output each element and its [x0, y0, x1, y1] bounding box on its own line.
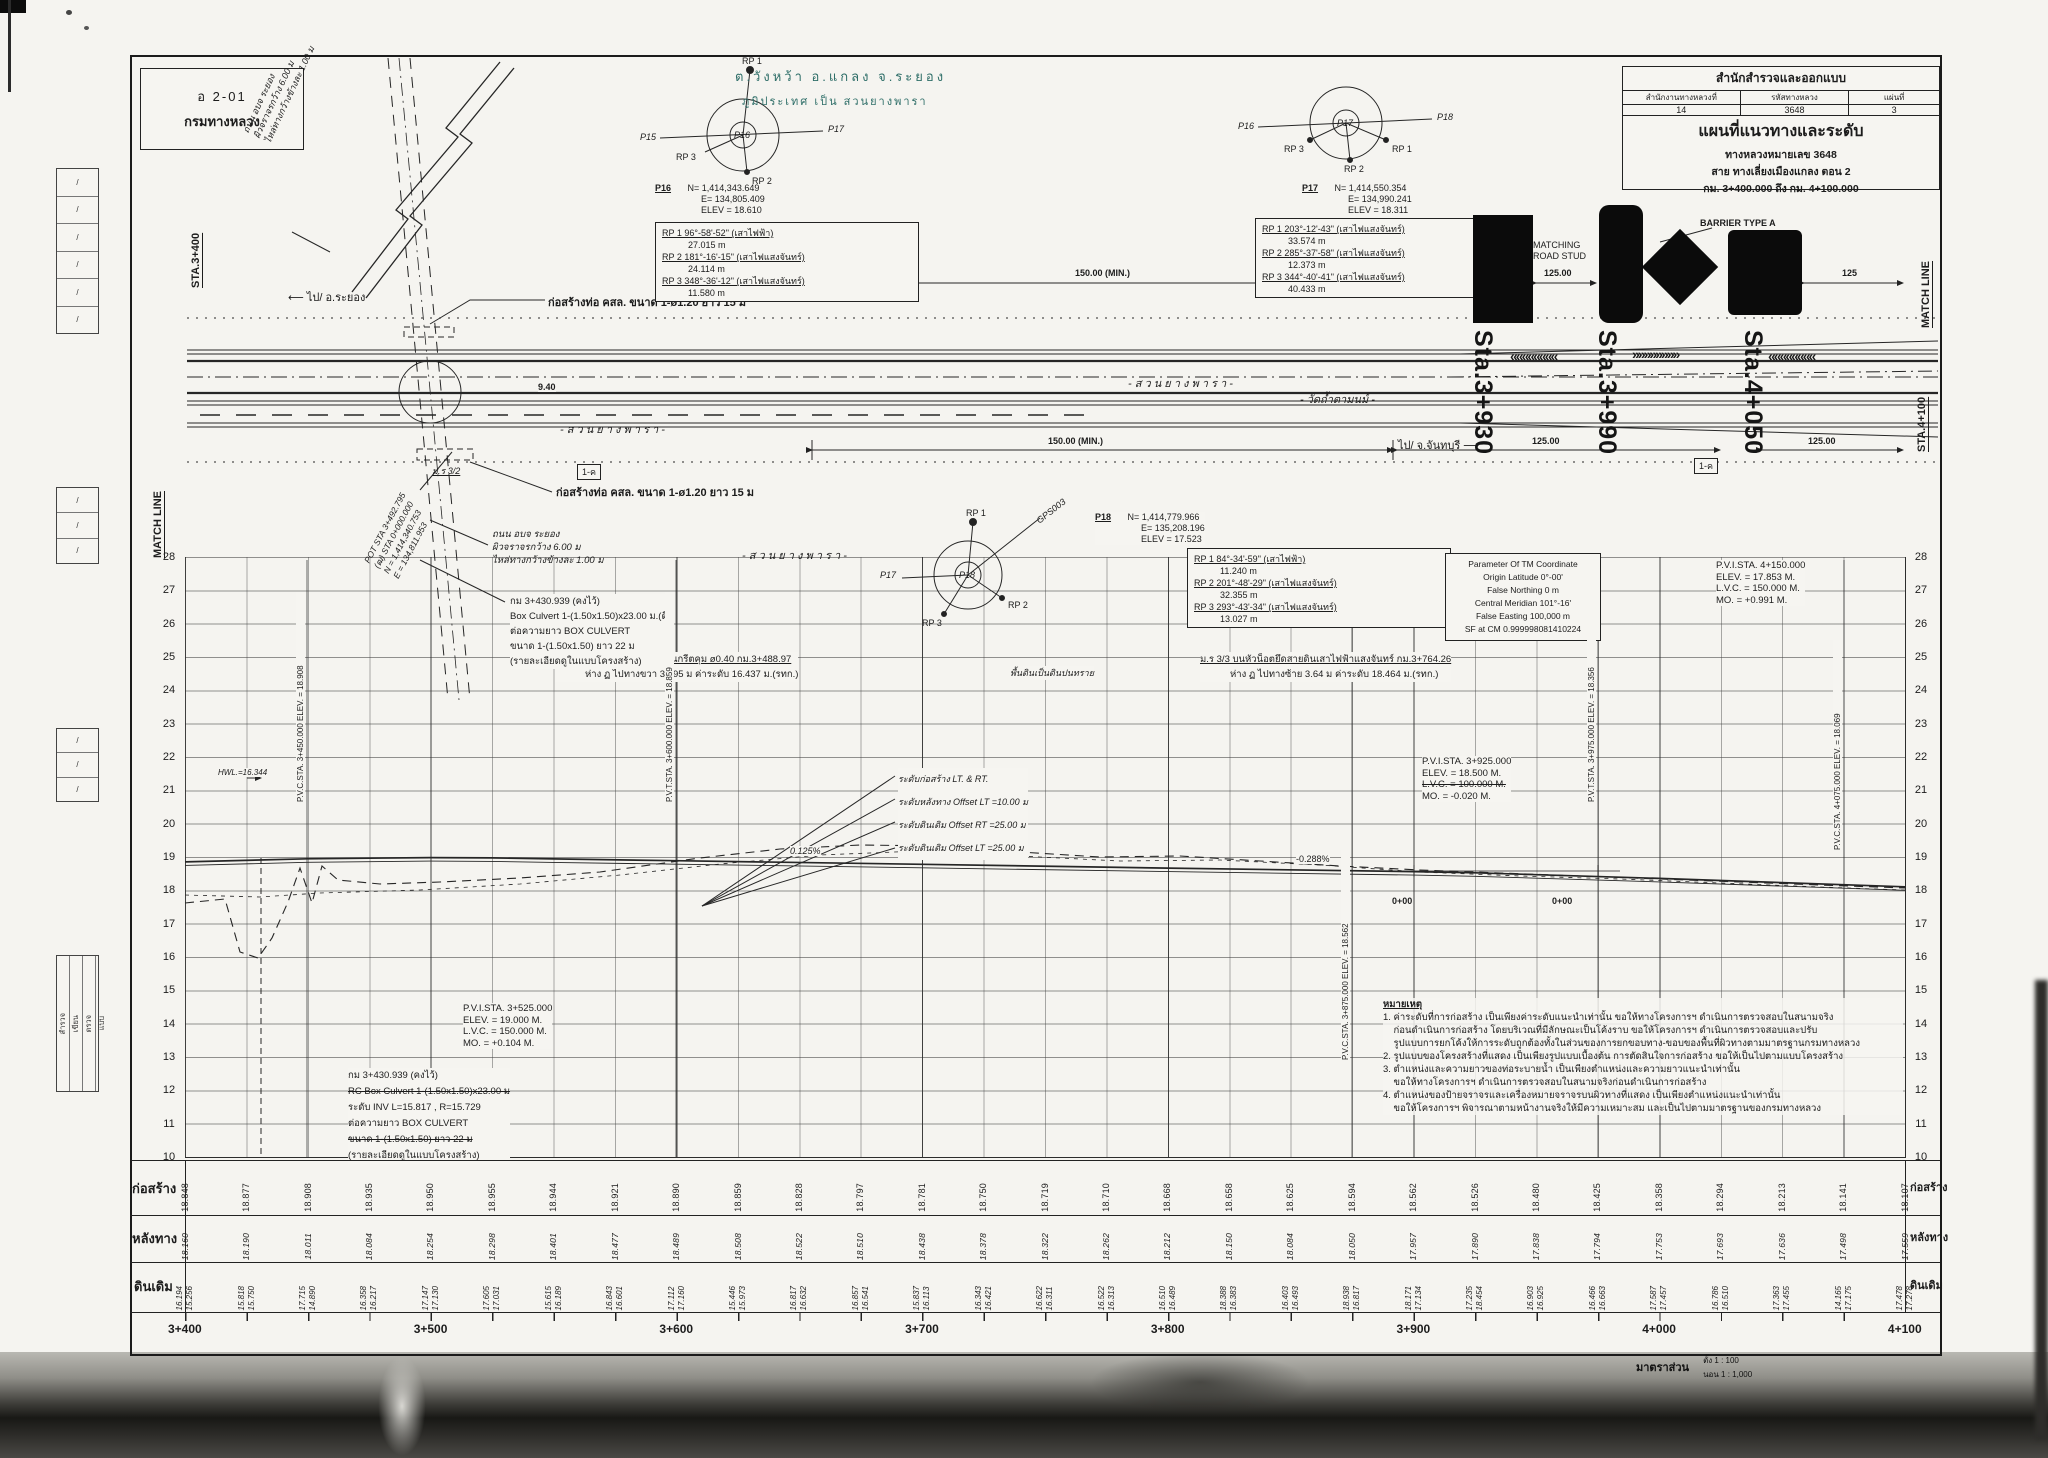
revision-strip-3: ///	[56, 728, 99, 802]
culvert-note-line: ขนาด 1-(1.50x1.50) ยาว 22 ม	[510, 639, 671, 654]
back-value: 18.190	[215, 1233, 276, 1260]
rp-entry: RP 3 293°-43'-34" (เสาไฟแสงจันทร์)13.027…	[1194, 600, 1444, 624]
pvi-line: MO. = -0.020 M.	[1422, 791, 1511, 803]
back-value: 17.890	[1444, 1233, 1505, 1260]
ground-value-pair: 16.85716.541	[830, 1286, 891, 1310]
ground-value-pair: 16.40316.493	[1260, 1286, 1321, 1310]
offset-line: ระดับดินเดิม Offset LT =25.00 ม	[898, 837, 1028, 860]
construction-value: 18.480	[1505, 1183, 1566, 1212]
p18-left-label: P17	[880, 570, 896, 580]
back-value: 17.753	[1628, 1233, 1689, 1260]
elevation-tick: 13	[1908, 1045, 1934, 1069]
ground-value-pair: 17.23518.454	[1444, 1286, 1505, 1310]
vlabel-pvc-4075: P.V.C.STA. 4+075.000 ELEV. = 18.069	[1833, 640, 1842, 850]
grade-label-2: -0.288%	[1296, 854, 1330, 864]
direction-chanthaburi: ไป/ จ.จันทบุรี ⟶	[1398, 436, 1479, 454]
construction-value: 18.955	[461, 1183, 522, 1212]
elevation-tick: 18	[1908, 878, 1934, 902]
drawing-title: แผนที่แนวทางและระดับ	[1623, 116, 1939, 144]
remarks-line: ขอให้ทางโครงการฯ ดำเนินการตรวจสอบในสนามจ…	[1383, 1076, 1903, 1089]
ground-value-pair: 17.47817.278	[1874, 1286, 1935, 1310]
sta-3400-label: STA.3+400	[190, 192, 202, 288]
back-value: 18.160	[154, 1233, 215, 1260]
p16-rp1-label: RP 1	[742, 56, 762, 66]
chevron-marking-1: ««««««««	[1510, 348, 1556, 364]
tm-parameter-box: Parameter Of TM CoordinateOrigin Latitud…	[1445, 553, 1601, 641]
redaction-box-3	[1728, 230, 1802, 315]
dim-125-top: 125.00	[1544, 268, 1572, 278]
station-overlay-3930: Sta.3+930	[1468, 330, 1497, 480]
ground-value-pair: 16.62216.311	[1014, 1286, 1075, 1310]
rp-entry: RP 3 348°-36'-12" (เสาไฟแสงจันทร์)11.580…	[662, 274, 912, 298]
culvert-note-line: (รายละเอียดดูในแบบโครงสร้าง)	[510, 654, 671, 669]
back-value: 17.636	[1751, 1233, 1812, 1260]
ground-value-pair: 16.19415.256	[154, 1286, 215, 1310]
construction-value: 18.828	[768, 1183, 829, 1212]
scale-horizontal: นอน 1 : 1,000	[1703, 1370, 1752, 1379]
revision-row: /	[57, 753, 98, 777]
pvi-line: L.V.C. = 150.000 M.	[1716, 583, 1805, 595]
construction-value: 18.719	[1014, 1183, 1075, 1212]
construction-value: 18.107	[1874, 1183, 1935, 1212]
revision-row: /	[57, 279, 98, 307]
construction-value: 18.921	[584, 1183, 645, 1212]
ground-value-pair: 16.78616.510	[1690, 1286, 1751, 1310]
p16-center-label: P16	[734, 130, 750, 140]
ground-value-pair: 15.81815.750	[215, 1286, 276, 1310]
culvert-note-line: Box Culvert 1-(1.50x1.50)x23.00 ม.(ดี)	[510, 609, 671, 624]
construction-value: 18.750	[952, 1183, 1013, 1212]
back-value: 18.510	[830, 1233, 891, 1260]
revision-row: /	[57, 252, 98, 280]
back-value: 18.438	[891, 1233, 952, 1260]
construction-value: 18.877	[215, 1183, 276, 1212]
signature-col: เขียน	[70, 956, 83, 1091]
pvi-line: ELEV. = 19.000 M.	[463, 1015, 552, 1027]
back-value: 18.522	[768, 1233, 829, 1260]
back-value: 17.957	[1382, 1233, 1443, 1260]
back-value: 17.838	[1505, 1233, 1566, 1260]
elevation-tick: 24	[156, 678, 182, 702]
scale-label: มาตราส่วน	[1636, 1358, 1689, 1376]
p18-rp3-label: RP 3	[922, 618, 942, 628]
scale-vertical: ตั้ง 1 : 100	[1703, 1356, 1739, 1365]
culvert-profile-line: ระดับ INV L=15.817 , R=15.729	[348, 1100, 510, 1116]
construction-value: 18.213	[1751, 1183, 1812, 1212]
elevation-tick: 12	[156, 1078, 182, 1102]
culvert-profile-line: RC Box Culvert 1-(1.50x1.50)x23.00 ม	[348, 1084, 510, 1100]
ground-value-pair: 18.93816.817	[1321, 1286, 1382, 1310]
ground-value-pair: 17.36317.455	[1751, 1286, 1812, 1310]
construction-value: 18.710	[1075, 1183, 1136, 1212]
dim-940: 9.40	[538, 382, 556, 392]
elevation-tick: 27	[1908, 578, 1934, 602]
culvert-profile-line: (รายละเอียดดูในแบบโครงสร้าง)	[348, 1148, 510, 1164]
symbol-1k-right: 1-ค	[1694, 458, 1718, 474]
section-name: สาย ทางเลี่ยงเมืองแกลง ตอน 2	[1623, 163, 1939, 180]
back-value: 18.150	[1198, 1233, 1259, 1260]
offset-line: ระดับดินเดิม Offset RT =25.00 ม	[898, 814, 1028, 837]
pvi-line: P.V.I.STA. 3+525.000	[463, 1003, 552, 1015]
construction-value: 18.425	[1567, 1183, 1628, 1212]
elevation-tick: 16	[156, 945, 182, 969]
signature-strip: สำรวจเขียนตรวจแบบ	[56, 955, 99, 1092]
station-label: 3+600	[553, 1322, 799, 1336]
revision-row: /	[57, 169, 98, 197]
remarks-line: 1. ค่าระดับที่การก่อสร้าง เป็นเพียงค่าระ…	[1383, 1011, 1903, 1024]
station-label: 3+400	[62, 1322, 308, 1336]
pvi-line: MO. = +0.991 M.	[1716, 595, 1805, 607]
station-tick-strip	[185, 1312, 1905, 1321]
side-road-note-line: ผิวจราจรกว้าง 6.00 ม	[492, 541, 604, 554]
tm-parameter-line: Central Meridian 101°-16'	[1448, 597, 1598, 610]
dim-125-bottom-2: 125.00	[1808, 436, 1836, 446]
elevation-tick: 17	[156, 912, 182, 936]
back-values-row: 18.16018.19018.01118.08418.25418.29818.4…	[154, 1217, 1936, 1260]
culvert-note-line: กม 3+430.939 (คงไว้)	[510, 594, 671, 609]
elevation-tick: 24	[1908, 678, 1934, 702]
revision-row: /	[57, 778, 98, 801]
elevation-tick: 28	[156, 545, 182, 569]
form-code: อ 2-01	[197, 86, 246, 107]
station-label: 3+800	[1045, 1322, 1291, 1336]
signature-col: ตรวจ	[83, 956, 96, 1091]
elevation-tick: 19	[1908, 845, 1934, 869]
p17-left-label: P16	[1238, 121, 1254, 131]
construction-value: 18.935	[338, 1183, 399, 1212]
pvi-line: ELEV. = 18.500 M.	[1422, 768, 1511, 780]
station-label: 4+000	[1536, 1322, 1782, 1336]
elevation-tick: 26	[1908, 612, 1934, 636]
culvert-profile-line: ต่อความยาว BOX CULVERT	[348, 1116, 510, 1132]
remarks-line: ก่อนดำเนินการก่อสร้าง โดยบริเวณที่มีลักษ…	[1383, 1024, 1903, 1037]
elevation-tick: 17	[1908, 912, 1934, 936]
match-line-left: MATCH LINE	[152, 462, 164, 558]
ground-value-pair: 15.83716.113	[891, 1286, 952, 1310]
ground-value-pair: 17.60517.031	[461, 1286, 522, 1310]
station-label: 3+700	[799, 1322, 1045, 1336]
culvert-note-line: ต่อความยาว BOX CULVERT	[510, 624, 671, 639]
back-value: 18.262	[1075, 1233, 1136, 1260]
row-divider-3	[130, 1262, 1940, 1263]
p17-right-label: P18	[1437, 112, 1453, 122]
redaction-box-1	[1473, 215, 1533, 323]
ground-value-pair: 17.14717.130	[400, 1286, 461, 1310]
back-value: 18.489	[645, 1233, 706, 1260]
elevation-tick: 11	[1908, 1112, 1934, 1136]
revision-row: /	[57, 224, 98, 252]
signature-col: สำรวจ	[57, 956, 70, 1091]
elevation-tick: 21	[1908, 778, 1934, 802]
elevation-tick: 26	[156, 612, 182, 636]
ground-value-pair: 17.71514.890	[277, 1286, 338, 1310]
offsets-legend: ระดับก่อสร้าง LT. & RT.ระดับหลังทาง Offs…	[898, 768, 1028, 860]
back-value: 17.794	[1567, 1233, 1628, 1260]
back-value: 18.084	[1260, 1233, 1321, 1260]
p17-rp2-label: RP 2	[1344, 164, 1364, 174]
elevation-tick: 25	[1908, 645, 1934, 669]
p16-rp3-label: RP 3	[676, 152, 696, 162]
title-col-roadcode: รหัสทางหลวง	[1741, 91, 1850, 104]
elevation-tick: 28	[1908, 545, 1934, 569]
tm-parameter-line: Parameter Of TM Coordinate	[1448, 558, 1598, 571]
dim-125-right: 125	[1842, 268, 1857, 278]
elevation-tick: 22	[156, 745, 182, 769]
p18-center-label: P18	[959, 570, 975, 580]
km-range: กม. 3+400.000 ถึง กม. 4+100.000	[1623, 180, 1939, 197]
plantation-label-3: - ส ว น ย า ง พ า ร า -	[742, 546, 847, 564]
construction-value: 18.797	[830, 1183, 891, 1212]
construction-value: 18.294	[1690, 1183, 1751, 1212]
location-line: ต.วังหว้า อ.แกลง จ.ระยอง	[735, 66, 946, 87]
revision-row: /	[57, 197, 98, 225]
remarks-line: 3. ตำแหน่งและความยาวของท่อระบายน้ำ เป็นเ…	[1383, 1063, 1903, 1076]
remarks-line: 2. รูปแบบของโครงสร้างที่แสดง เป็นเพียงรู…	[1383, 1050, 1903, 1063]
tm-parameter-line: False Northing 0 m	[1448, 584, 1598, 597]
bm-plan-label: ม.ร 3/2	[432, 464, 460, 478]
highway-number: ทางหลวงหมายเลข 3648	[1623, 144, 1939, 163]
remarks-line: รูปแบบการยกโค้งให้การระดับถูกต้องทั้งในส…	[1383, 1037, 1903, 1050]
p17-coordinates: P17 N= 1,414,550.354E= 134,990.241ELEV =…	[1302, 183, 1412, 216]
arrow-left-icon: ⟵	[288, 292, 307, 304]
side-road-note-line: ถนน อบจ ระยอง	[492, 528, 604, 541]
elevation-tick: 23	[156, 712, 182, 736]
direction-rayong: ⟵ ไป/ อ.ระยอง	[288, 288, 365, 306]
revision-row: /	[57, 539, 98, 563]
terrain-line: ภูมิประเทศ เป็น สวนยางพารา	[742, 92, 928, 110]
construction-value: 18.141	[1812, 1183, 1873, 1212]
elevation-tick: 19	[156, 845, 182, 869]
tm-parameter-line: Origin Latitude 0°-00'	[1448, 571, 1598, 584]
offset-line: ระดับก่อสร้าง LT. & RT.	[898, 768, 1028, 791]
construction-value: 18.890	[645, 1183, 706, 1212]
offset-line: ระดับหลังทาง Offset LT =10.00 ม	[898, 791, 1028, 814]
pvi-line: L.V.C. = 150.000 M.	[463, 1026, 552, 1038]
ground-value-pair: 16.52216.313	[1075, 1286, 1136, 1310]
station-label: 3+900	[1291, 1322, 1537, 1336]
vlabel-pvt-3975: P.V.T.STA. 3+975.000 ELEV. = 18.356	[1587, 592, 1596, 802]
title-block: สำนักสำรวจและออกแบบ สำนักงานทางหลวงที่ ร…	[1622, 66, 1940, 190]
back-value: 17.693	[1690, 1233, 1751, 1260]
p18-rp1-label: RP 1	[966, 508, 986, 518]
revision-strip-2: ///	[56, 487, 99, 564]
dim-150-top: 150.00 (MIN.)	[1075, 268, 1130, 278]
ground-value-pair: 16.46616.663	[1567, 1286, 1628, 1310]
station-labels-row: 3+4003+5003+6003+7003+8003+9004+0004+100	[62, 1322, 2028, 1336]
elevation-tick: 14	[1908, 1012, 1934, 1036]
ground-value-pair: 17.11217.160	[645, 1286, 706, 1310]
plantation-label-2: - ส ว น ย า ง พ า ร า -	[1128, 374, 1233, 392]
p18-coordinates: P18 N= 1,414,779.966E= 135,208.196ELEV =…	[1095, 512, 1205, 545]
back-value: 18.322	[1014, 1233, 1075, 1260]
plantation-label-1: - ส ว น ย า ง พ า ร า -	[560, 420, 665, 438]
ground-value-pair: 15.61516.189	[523, 1286, 584, 1310]
rp-entry: RP 2 181°-16'-15" (เสาไฟแสงจันทร์)24.114…	[662, 250, 912, 274]
back-value: 18.011	[277, 1233, 338, 1260]
station-label: 4+100	[1782, 1322, 2028, 1336]
ground-value-pair: 16.34316.421	[952, 1286, 1013, 1310]
title-val-roadcode: 3648	[1741, 105, 1850, 115]
culvert-profile-line: ขนาด 1-(1.50x1.50) ยาว 22 ม	[348, 1132, 510, 1148]
station-overlay-3990: Sta.3+990	[1592, 330, 1621, 480]
construction-value: 18.668	[1137, 1183, 1198, 1212]
p16-rp-table: RP 1 96°-58'-52" (เสาไฟฟ้า)27.015 mRP 2 …	[655, 222, 919, 302]
pvi-line: L.V.C. = 100.000 M.	[1422, 779, 1511, 791]
elevation-tick: 15	[1908, 978, 1934, 1002]
back-value: 18.378	[952, 1233, 1013, 1260]
p16-left-label: P15	[640, 132, 656, 142]
elevation-tick: 16	[1908, 945, 1934, 969]
construction-value: 18.950	[400, 1183, 461, 1212]
ground-value-pair: 16.35816.217	[338, 1286, 399, 1310]
chevron-marking-3: ««««««««	[1768, 348, 1814, 364]
ground-values-row: 16.19415.25615.81815.75017.71514.89016.3…	[154, 1264, 1936, 1310]
construction-value: 18.658	[1198, 1183, 1259, 1212]
back-value: 18.477	[584, 1233, 645, 1260]
rp-entry: RP 1 96°-58'-52" (เสาไฟฟ้า)27.015 m	[662, 226, 912, 250]
vlabel-pvc-3450: P.V.C.STA. 3+450.000 ELEV. = 18.908	[296, 592, 305, 802]
title-val-office: 14	[1623, 105, 1741, 115]
back-value: 18.508	[707, 1233, 768, 1260]
barrier-type-label: BARRIER TYPE A	[1700, 218, 1776, 228]
p17-rp1-label: RP 1	[1392, 144, 1412, 154]
vlabel-pvc-3875: P.V.C.STA. 3+875.000 ELEV. = 18.562	[1341, 850, 1350, 1060]
row-divider-2	[130, 1215, 1940, 1216]
pvi-block-1: P.V.I.STA. 3+525.000ELEV. = 19.000 M.L.V…	[463, 1003, 552, 1049]
revision-row: /	[57, 513, 98, 538]
title-col-office: สำนักงานทางหลวงที่	[1623, 91, 1741, 104]
culvert-plan-note: กม 3+430.939 (คงไว้)Box Culvert 1-(1.50x…	[510, 594, 671, 669]
side-road-note-line: ไหล่ทางกว้างข้างละ 1.00 ม	[492, 554, 604, 567]
pvi-block-2: P.V.I.STA. 3+925.000ELEV. = 18.500 M.L.V…	[1422, 756, 1511, 802]
dim-150-bottom: 150.00 (MIN.)	[1048, 436, 1103, 446]
redaction-box-2	[1599, 205, 1643, 323]
remarks-heading: หมายเหตุ	[1383, 998, 1903, 1011]
construction-value: 18.625	[1260, 1183, 1321, 1212]
elevation-tick: 13	[156, 1045, 182, 1069]
ground-value-pair: 18.17117.134	[1382, 1286, 1443, 1310]
tm-parameter-line: SF at CM 0.999998081410224	[1448, 623, 1598, 636]
station-label: 3+500	[308, 1322, 554, 1336]
construction-value: 18.859	[707, 1183, 768, 1212]
scale-note: มาตราส่วน ตั้ง 1 : 100 นอน 1 : 1,000	[1636, 1353, 1752, 1381]
elevation-tick: 14	[156, 1012, 182, 1036]
elevation-tick: 18	[156, 878, 182, 902]
temple-label: - วัดถ้ำตามนม์ -	[1300, 390, 1375, 408]
pvi-line: P.V.I.STA. 3+925.000	[1422, 756, 1511, 768]
remarks-block: หมายเหตุ 1. ค่าระดับที่การก่อสร้าง เป็นเ…	[1383, 998, 1903, 1115]
elevation-tick: 12	[1908, 1078, 1934, 1102]
p16-right-label: P17	[828, 124, 844, 134]
revision-row: /	[57, 307, 98, 334]
culvert-profile-note: กม 3+430.939 (คงไว้)RC Box Culvert 1-(1.…	[348, 1068, 510, 1164]
ground-value-pair: 15.44615.973	[707, 1286, 768, 1310]
rp-entry: RP 2 201°-48'-29" (เสาไฟแสงจันทร์)32.355…	[1194, 576, 1444, 600]
remarks-line: ขอให้โครงการฯ พิจารณาตามหน้างานจริงให้มี…	[1383, 1102, 1903, 1115]
ground-value-pair: 16.90316.925	[1505, 1286, 1566, 1310]
back-value: 18.212	[1137, 1233, 1198, 1260]
station-overlay-4050: Sta.4+050	[1738, 330, 1767, 480]
construction-value: 18.562	[1382, 1183, 1443, 1212]
ground-value-pair: 16.84316.601	[584, 1286, 645, 1310]
elevation-tick: 27	[156, 578, 182, 602]
construction-value: 18.908	[277, 1183, 338, 1212]
p18-rp-table: RP 1 84°-34'-59" (เสาไฟฟ้า)11.240 mRP 2 …	[1187, 548, 1451, 628]
back-value: 17.559	[1874, 1233, 1935, 1260]
match-line-right: MATCH LINE	[1920, 228, 1932, 328]
culvert-profile-line: กม 3+430.939 (คงไว้)	[348, 1068, 510, 1084]
ground-value-pair: 16.81716.632	[768, 1286, 829, 1310]
matching-road-stud: MATCHINGROAD STUD	[1533, 240, 1586, 262]
p17-rp3-label: RP 3	[1284, 144, 1304, 154]
back-value: 18.254	[400, 1233, 461, 1260]
elevation-tick: 21	[156, 778, 182, 802]
elevation-tick: 22	[1908, 745, 1934, 769]
elevation-tick: 11	[156, 1112, 182, 1136]
construction-value: 18.848	[154, 1183, 215, 1212]
ground-value-pair: 16.51016.489	[1137, 1286, 1198, 1310]
sta-4100-label: STA.4+100	[1916, 352, 1928, 452]
row-divider-1	[130, 1160, 1940, 1161]
signature-col: แบบ	[96, 956, 108, 1091]
vlabel-pvt-3600: P.V.T.STA. 3+600.000 ELEV. = 18.859	[665, 592, 674, 802]
back-value: 18.401	[523, 1233, 584, 1260]
elevation-tick: 15	[156, 978, 182, 1002]
construction-value: 18.358	[1628, 1183, 1689, 1212]
p17-center-label: P17	[1337, 118, 1353, 128]
elevation-tick: 23	[1908, 712, 1934, 736]
zero-label-2: 0+00	[1552, 896, 1572, 906]
construction-value: 18.781	[891, 1183, 952, 1212]
pvi-block-3: P.V.I.STA. 4+150.000ELEV. = 17.853 M.L.V…	[1716, 560, 1805, 606]
construction-value: 18.944	[523, 1183, 584, 1212]
soil-note: พื้นดินเป็นดินปนทราย	[1010, 666, 1094, 680]
pipe-note-bottom: ก่อสร้างท่อ คสล. ขนาด 1-ø1.20 ยาว 15 ม	[556, 483, 754, 501]
revision-row: /	[57, 488, 98, 513]
back-value: 18.050	[1321, 1233, 1382, 1260]
zero-label-1: 0+00	[1392, 896, 1412, 906]
title-val-sheet: 3	[1849, 105, 1939, 115]
elevation-scale-left: 28272625242322212019181716151413121110	[156, 545, 182, 1169]
back-value: 17.498	[1812, 1233, 1873, 1260]
pvi-line: P.V.I.STA. 4+150.000	[1716, 560, 1805, 572]
chevron-marking-2: »»»»»»»»	[1632, 346, 1678, 362]
construction-values-row: 18.84818.87718.90818.93518.95018.95518.9…	[154, 1164, 1936, 1212]
dim-125-bottom-1: 125.00	[1532, 436, 1560, 446]
title-block-bureau: สำนักสำรวจและออกแบบ	[1623, 67, 1939, 91]
revision-row: /	[57, 729, 98, 753]
back-value: 18.298	[461, 1233, 522, 1260]
grade-label-1: 0.125%	[790, 846, 821, 856]
back-value: 18.084	[338, 1233, 399, 1260]
ground-value-pair: 14.16517.175	[1812, 1286, 1873, 1310]
elevation-tick: 25	[156, 645, 182, 669]
p16-coordinates: P16 N= 1,414,343.649E= 134,805.409ELEV =…	[655, 183, 765, 216]
construction-value: 18.526	[1444, 1183, 1505, 1212]
elevation-tick: 20	[156, 812, 182, 836]
pvi-line: MO. = +0.104 M.	[463, 1038, 552, 1050]
title-col-sheet: แผ่นที่	[1849, 91, 1939, 104]
side-road-note: ถนน อบจ ระยองผิวจราจรกว้าง 6.00 มไหล่ทาง…	[492, 528, 604, 567]
rp-entry: RP 1 84°-34'-59" (เสาไฟฟ้า)11.240 m	[1194, 552, 1444, 576]
pvi-line: ELEV. = 17.853 M.	[1716, 572, 1805, 584]
p18-rp2-label: RP 2	[1008, 600, 1028, 610]
elevation-scale-right: 28272625242322212019181716151413121110	[1908, 545, 1934, 1169]
tm-parameter-line: False Easting 100,000 m	[1448, 610, 1598, 623]
remarks-line: 4. ตำแหน่งของป้ายจราจรและเครื่องหมายจราจ…	[1383, 1089, 1903, 1102]
symbol-1k-left: 1-ค	[577, 464, 601, 480]
construction-value: 18.594	[1321, 1183, 1382, 1212]
